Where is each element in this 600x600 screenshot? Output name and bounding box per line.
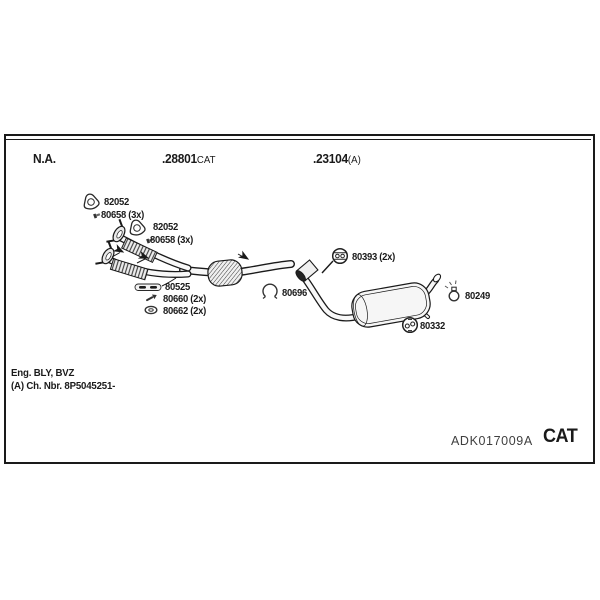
part-label-80525: 80525 xyxy=(165,281,190,293)
gasket-icon xyxy=(128,218,146,236)
catalytic-converter xyxy=(207,259,243,287)
part-label-80662: 80662 (2x) xyxy=(163,305,206,317)
part-label-80332: 80332 xyxy=(420,320,445,332)
gasket-icon xyxy=(82,192,100,210)
exhaust-system-drawing xyxy=(0,0,600,600)
stud-bolt-icon xyxy=(93,212,101,218)
pipe-clamp-icon xyxy=(263,284,277,298)
catalog-page: N.A. .28801CAT .23104(A) xyxy=(0,0,600,600)
intermediate-pipe xyxy=(303,276,360,318)
cat-type-stamp: CAT xyxy=(543,426,577,448)
part-label-80696: 80696 xyxy=(282,287,307,299)
rubber-hanger-icon xyxy=(333,249,348,264)
part-label-82052: 82052 xyxy=(153,221,178,233)
bolt-clamp-icon xyxy=(445,281,459,301)
mounting-bracket-icon xyxy=(135,284,161,291)
part-label-82052: 82052 xyxy=(104,196,129,208)
part-label-80249: 80249 xyxy=(465,290,490,302)
hanger-pin xyxy=(322,261,333,273)
engine-codes-line: Eng. BLY, BVZ xyxy=(11,367,74,379)
part-label-80393: 80393 (2x) xyxy=(352,251,395,263)
part-label-80658: 80658 (3x) xyxy=(101,209,144,221)
reference-code: ADK017009A xyxy=(451,434,533,448)
screw-icon xyxy=(145,293,158,303)
chassis-number-line: (A) Ch. Nbr. 8P5045251- xyxy=(11,380,115,392)
part-label-80658: 80658 (3x) xyxy=(150,234,193,246)
rubber-hanger-icon xyxy=(403,318,418,333)
washer-nut-icon xyxy=(145,306,157,313)
flex-pipe-lower xyxy=(110,259,148,280)
part-label-80660: 80660 (2x) xyxy=(163,293,206,305)
pipe-inlet-end xyxy=(294,260,318,283)
